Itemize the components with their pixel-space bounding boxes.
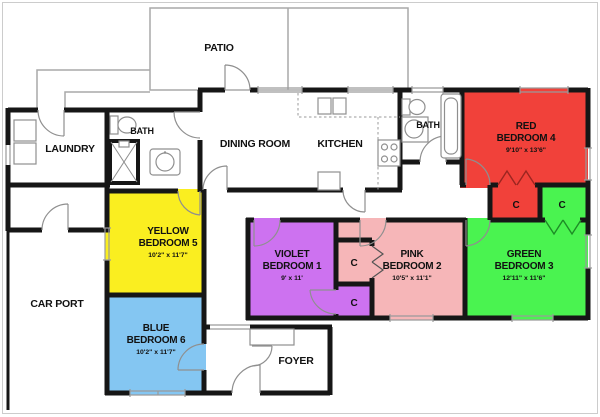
violet-closet-label: C xyxy=(350,298,357,309)
svg-text:10'2" x 11'7": 10'2" x 11'7" xyxy=(136,349,176,356)
dryer xyxy=(14,143,36,164)
svg-text:RED: RED xyxy=(516,121,537,132)
svg-text:BEDROOM 5: BEDROOM 5 xyxy=(139,238,198,249)
svg-text:BEDROOM 2: BEDROOM 2 xyxy=(383,261,442,272)
pink-closet-label: C xyxy=(350,258,357,269)
svg-text:BEDROOM 6: BEDROOM 6 xyxy=(127,335,186,346)
stove xyxy=(378,140,400,166)
svg-text:VIOLET: VIOLET xyxy=(275,249,310,260)
patio-area xyxy=(150,8,408,90)
svg-text:YELLOW: YELLOW xyxy=(147,226,189,237)
svg-text:9'10" x 13'6": 9'10" x 13'6" xyxy=(506,147,546,154)
red-closet-label: C xyxy=(512,200,519,211)
sink-1 xyxy=(150,149,180,175)
floor-plan-drawing: PATIO LAUNDRY BATH BATH DINING ROOM KITC… xyxy=(0,0,600,417)
svg-text:9' x 11': 9' x 11' xyxy=(281,275,303,282)
green-closet-label: C xyxy=(558,200,565,211)
toilet-2 xyxy=(402,99,425,115)
bathtub xyxy=(441,94,461,158)
svg-text:GREEN: GREEN xyxy=(507,249,542,260)
kitchen-sink xyxy=(318,98,331,114)
patio-label: PATIO xyxy=(204,42,234,54)
dining-room-label: DINING ROOM xyxy=(220,138,291,150)
washer xyxy=(14,120,36,141)
bath2-label: BATH xyxy=(416,120,440,130)
svg-text:10'2" x 11'7": 10'2" x 11'7" xyxy=(148,252,188,259)
svg-text:BEDROOM 4: BEDROOM 4 xyxy=(497,133,556,144)
svg-text:BEDROOM 1: BEDROOM 1 xyxy=(263,261,322,272)
laundry-label: LAUNDRY xyxy=(45,143,95,155)
kitchen-label: KITCHEN xyxy=(317,138,362,150)
dishwasher xyxy=(318,172,340,190)
svg-text:BEDROOM 3: BEDROOM 3 xyxy=(495,261,554,272)
walkway xyxy=(37,70,150,108)
svg-text:BLUE: BLUE xyxy=(143,323,170,334)
svg-text:PINK: PINK xyxy=(400,249,424,260)
svg-text:10'5" x 11'1": 10'5" x 11'1" xyxy=(392,275,432,282)
bath1-label: BATH xyxy=(130,126,154,136)
svg-text:12'11" x 11'6": 12'11" x 11'6" xyxy=(503,275,546,282)
shower xyxy=(110,141,138,183)
floor-plan: PATIO LAUNDRY BATH BATH DINING ROOM KITC… xyxy=(0,0,600,417)
foyer-label: FOYER xyxy=(278,355,314,367)
carport-label: CAR PORT xyxy=(30,298,84,310)
